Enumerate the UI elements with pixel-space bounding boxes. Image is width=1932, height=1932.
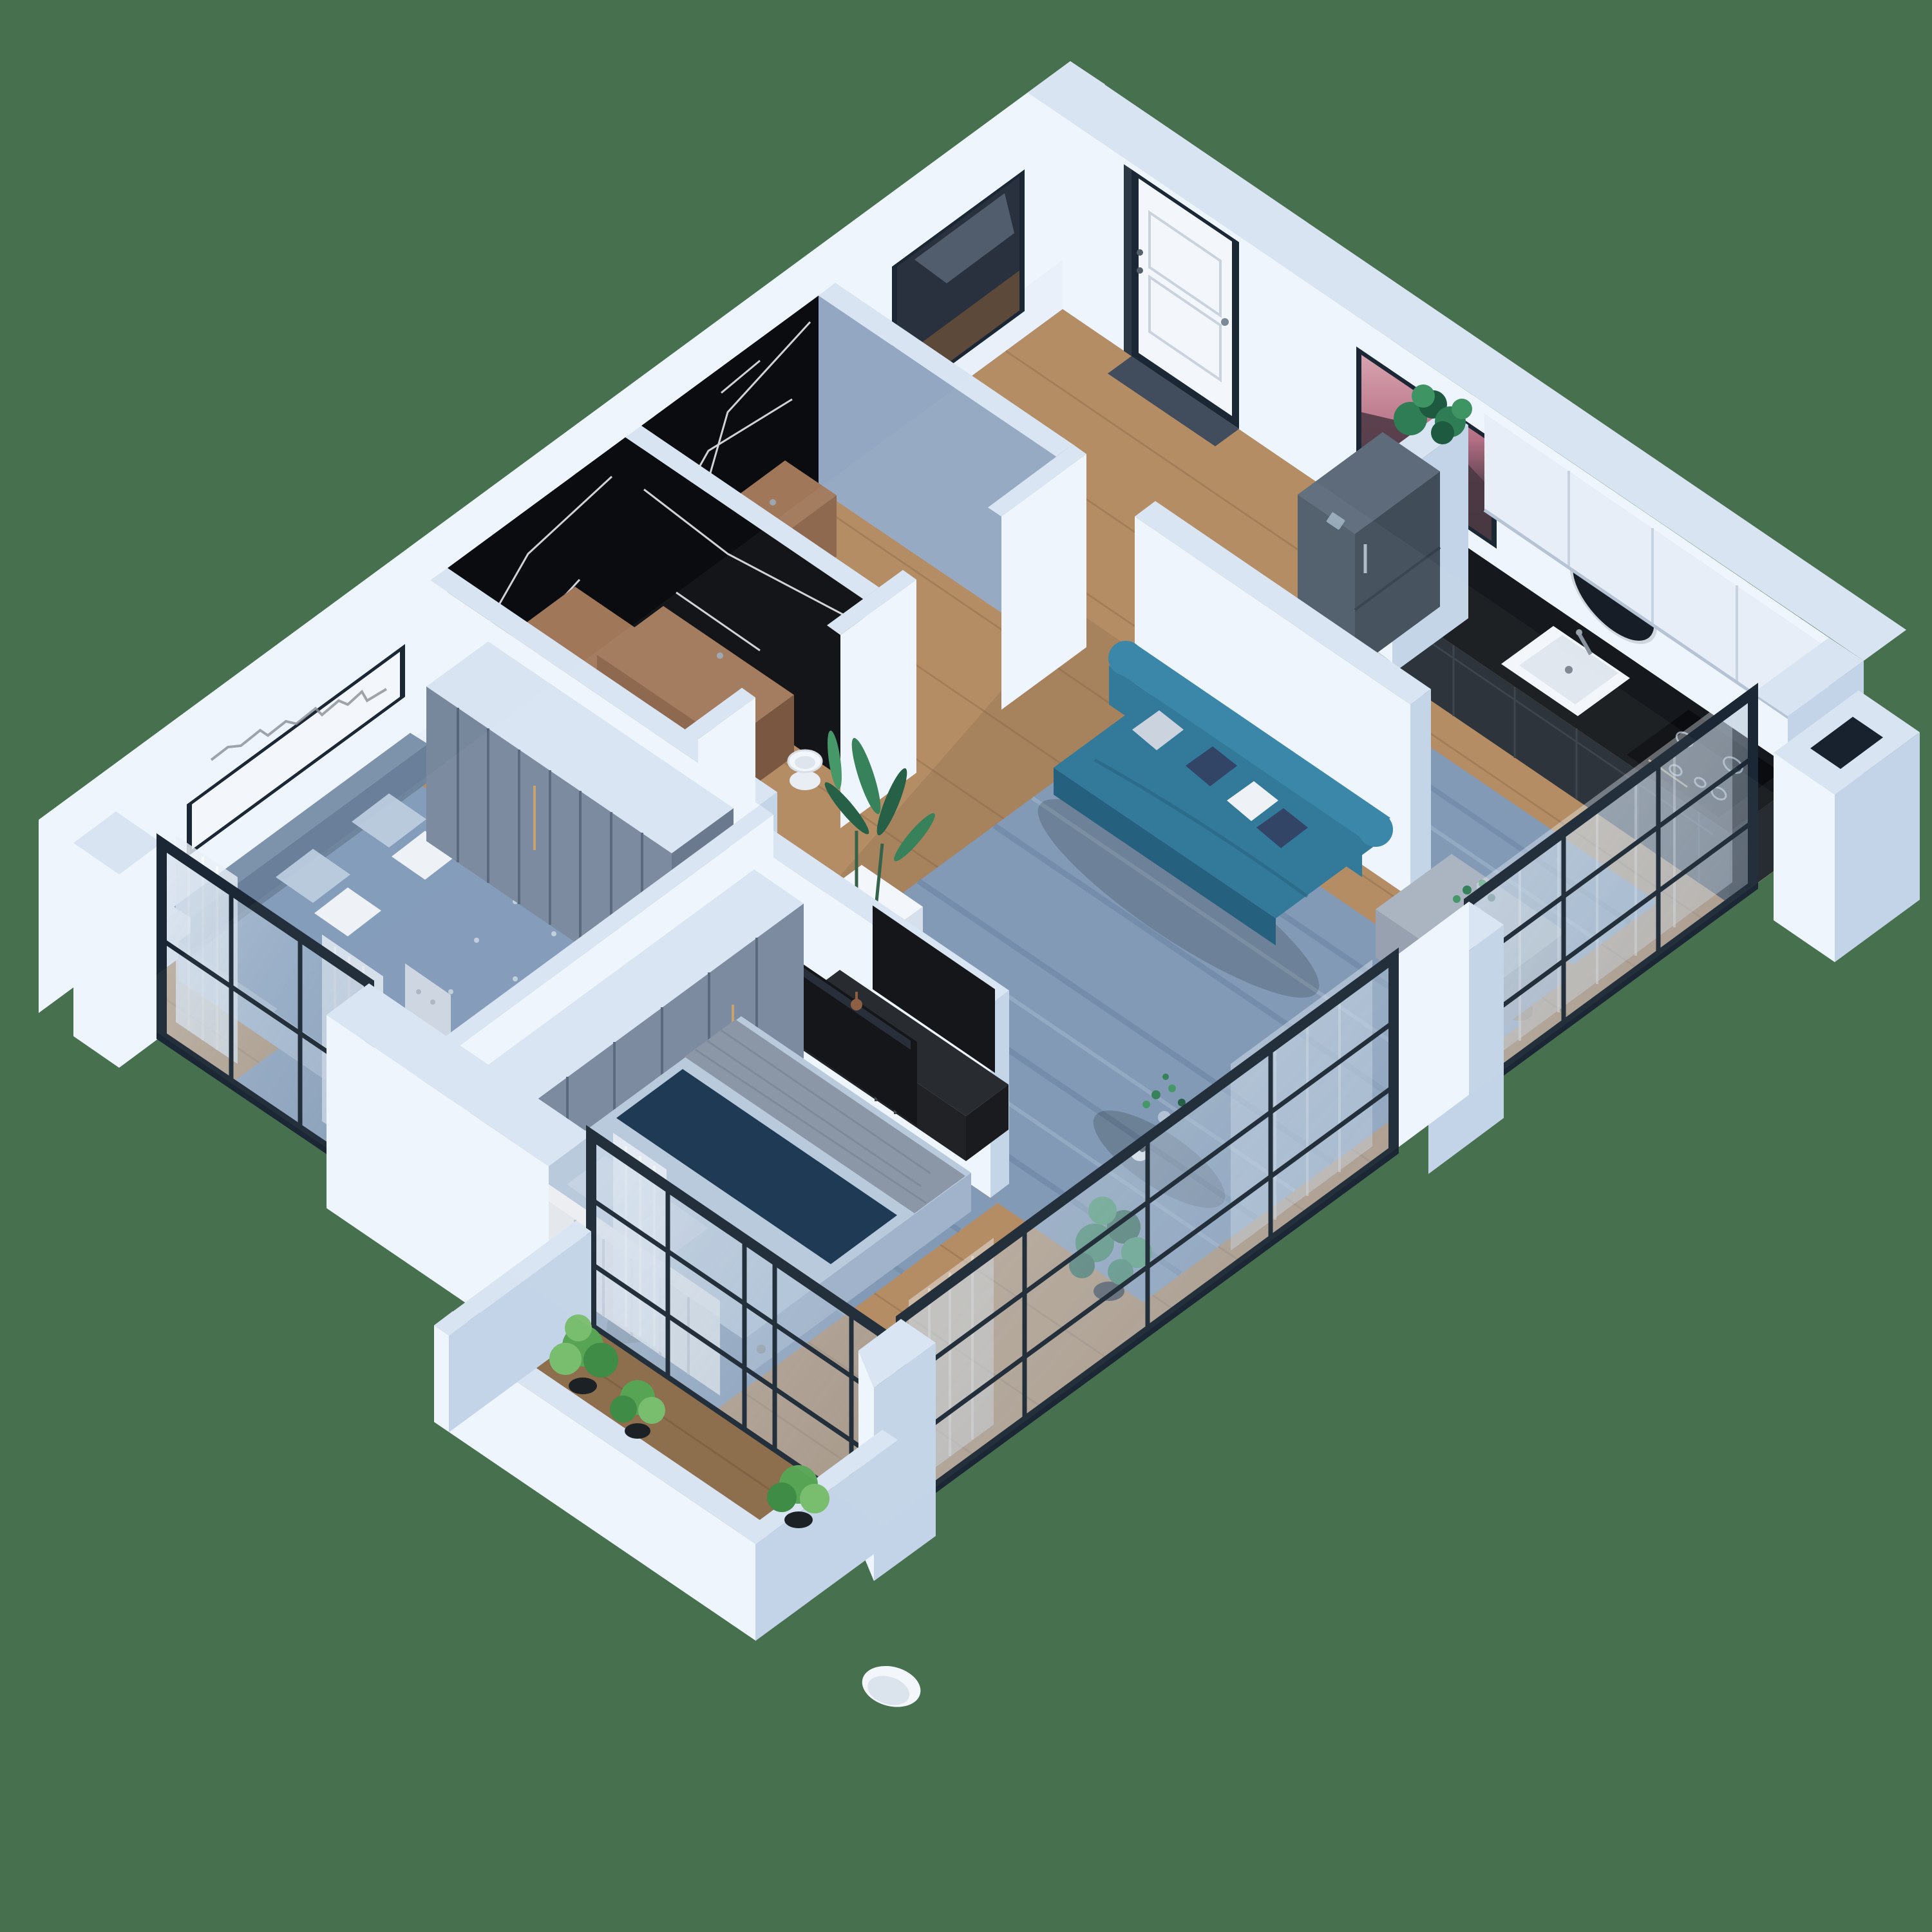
gas-hob	[1627, 710, 1781, 817]
fridge-shadow	[1307, 618, 1425, 715]
sphere-lamp	[1437, 926, 1455, 944]
armchair-base	[346, 1059, 395, 1122]
wall-outer-face	[39, 61, 1070, 1013]
drawer-seams	[1423, 638, 1713, 883]
fridge-top	[1298, 432, 1440, 534]
upper-cabinets	[1484, 413, 1821, 740]
plant-pot	[1094, 1282, 1124, 1301]
copper-vase	[851, 992, 862, 1010]
bedroom2-curtains	[613, 1133, 667, 1356]
pillow	[567, 1156, 644, 1211]
drain	[1565, 666, 1573, 674]
tv-screen-bedroom	[787, 953, 917, 1126]
balcony-shrubs	[549, 1314, 829, 1528]
tv-partition	[730, 813, 1009, 1198]
fridge-front	[1298, 495, 1355, 669]
skyline-sketch	[211, 689, 386, 760]
knit-runner	[685, 1019, 965, 1213]
planter-top	[786, 865, 923, 962]
corner-post	[858, 1319, 936, 1581]
bed-shadow	[254, 877, 571, 1132]
pillow	[631, 1201, 708, 1256]
tv-screen-living	[873, 905, 995, 1073]
console-top	[797, 970, 1009, 1116]
knit-lines	[696, 1030, 931, 1203]
throw-blanket	[496, 960, 650, 1069]
bath-round-mirror	[1571, 533, 1656, 661]
planter-side	[847, 907, 923, 1020]
door-threshold	[1108, 356, 1239, 446]
london-skyline-art	[187, 644, 405, 857]
shrub-pot	[625, 1423, 650, 1439]
parapet-end	[449, 1231, 591, 1432]
sofa-base	[1054, 768, 1276, 945]
bedroom1-window	[162, 843, 369, 1177]
bed-top	[178, 775, 643, 1103]
door-leaf	[1139, 178, 1232, 416]
sofa-backrest-top	[1109, 645, 1390, 838]
hallway-floor-tint	[773, 609, 1314, 1133]
kitchen-plant	[1394, 384, 1472, 444]
balcony	[434, 1221, 898, 1641]
bed-side	[744, 1173, 971, 1378]
cabinet-seams	[1569, 471, 1737, 682]
kitchen-corner-pier	[1753, 638, 1864, 909]
window-glass	[162, 843, 369, 1177]
door-frame	[1132, 169, 1239, 429]
shrub-pot	[784, 1511, 813, 1528]
parapet-outer	[434, 1325, 756, 1641]
sofa-shadow	[1018, 772, 1340, 1025]
wardrobe-slats	[458, 708, 642, 987]
partition-wc-bath	[625, 426, 879, 792]
window-curtains-interior	[909, 696, 1732, 1487]
corner-pier-left	[73, 811, 162, 1068]
wall-top-face	[1028, 61, 1906, 661]
corner-plant	[1069, 1197, 1152, 1301]
pillow	[352, 793, 426, 848]
marble-veins	[650, 322, 810, 554]
kitchen-end-pillar	[1369, 410, 1468, 674]
mirror-highlight	[914, 193, 1014, 283]
window-frame	[901, 958, 1394, 1512]
rugs	[231, 709, 1658, 1412]
strelitzia-leaves	[820, 730, 940, 908]
kitchen	[1298, 384, 1821, 904]
kitchen-rug	[1289, 709, 1658, 965]
shrub-pot	[569, 1378, 597, 1394]
main-bath-vanity	[488, 606, 794, 1932]
kitchen-sink	[1501, 626, 1630, 716]
cabinet-end	[1729, 777, 1805, 904]
bed-side	[416, 936, 643, 1142]
window-mullions	[1469, 757, 1753, 1030]
bed-2	[490, 1016, 971, 1396]
gray-dining-set	[1376, 854, 1932, 1932]
door-handle	[757, 1345, 766, 1354]
wardrobe-bedroom1	[426, 641, 734, 1008]
balcony-parapet	[434, 1221, 898, 1641]
wall-bottom-right	[901, 638, 1920, 1512]
oval-basin	[850, 1658, 932, 1716]
headboard-face	[191, 744, 428, 956]
wardrobe-front	[426, 687, 672, 1008]
cushion	[1256, 808, 1308, 848]
marble-veins	[644, 489, 850, 650]
tray-pattern	[922, 383, 952, 387]
front-door	[1108, 164, 1239, 446]
hob-controls	[1649, 760, 1687, 787]
tv-reflection	[793, 961, 911, 1050]
outer-wall-top-right	[1028, 61, 1906, 831]
door-panel	[1150, 213, 1220, 316]
fridge-door-seam	[1355, 547, 1440, 610]
duct-front	[1774, 753, 1835, 962]
cushion	[1186, 746, 1237, 786]
strelitzia-planter	[786, 730, 940, 1020]
mountain-silhouette	[1361, 412, 1492, 541]
cabinet-bottom-edge	[1484, 510, 1821, 740]
deck-planks	[515, 1356, 853, 1589]
cup	[726, 550, 736, 560]
tv-console	[797, 970, 1009, 1161]
headboard-top	[174, 733, 428, 918]
fridge-freezer	[1298, 432, 1440, 669]
armchair-seat	[346, 1018, 452, 1093]
bathrooms	[93, 283, 1932, 1932]
door-jamb	[1124, 164, 1132, 356]
wardrobe-top	[426, 641, 734, 853]
divider-top	[446, 805, 773, 1046]
green-background	[0, 0, 1932, 1932]
fridge-display	[1326, 512, 1345, 530]
pillow	[392, 831, 459, 880]
entry-hall	[848, 164, 1497, 551]
ambient-light	[116, 309, 1829, 1526]
cushion	[1227, 781, 1278, 821]
faucet	[717, 652, 723, 659]
bath-marble-wall	[448, 437, 625, 761]
sofa-partition	[1135, 501, 1431, 898]
toilet	[788, 750, 822, 790]
bath-tall-cabinet	[509, 587, 644, 850]
eucalyptus-vase	[1453, 880, 1495, 918]
window-glass	[901, 958, 1394, 1512]
window-pier	[1394, 902, 1504, 1174]
cabinet-fronts	[1392, 603, 1729, 904]
sofa-seat	[1054, 695, 1375, 918]
parapet-end	[755, 1440, 898, 1641]
table-front	[1376, 909, 1490, 1036]
divider-face	[459, 815, 773, 1239]
floor-planks	[144, 351, 1772, 1506]
duct-shaft	[1774, 690, 1920, 962]
duct-top	[1774, 690, 1920, 795]
bedroom1-curtains	[176, 835, 383, 1163]
living-room-rug	[730, 742, 1522, 1302]
balcony-deck	[468, 1328, 882, 1616]
bed-top	[514, 1016, 971, 1340]
kitchen-window	[1469, 693, 1753, 1095]
guest-wc-vanity	[672, 460, 933, 1716]
wardrobe-front	[520, 904, 804, 1267]
bedroom1-rug	[231, 875, 730, 1229]
navy-throw	[616, 1069, 897, 1264]
headboard-channels	[518, 1181, 688, 1374]
base-cabinets	[1392, 548, 1805, 904]
table-shadow	[1080, 1094, 1238, 1225]
duvet-pattern	[410, 899, 569, 1033]
entry-mirror	[892, 169, 1025, 408]
faucet	[1579, 634, 1591, 654]
bedroom2-rug	[476, 1041, 998, 1412]
bed-shadow	[584, 1121, 884, 1372]
wardrobe-side	[672, 808, 734, 1008]
bed-front	[178, 942, 416, 1142]
glazing-mullions	[591, 1187, 882, 1505]
duct-side	[1835, 732, 1920, 962]
wall-bottom-left	[73, 811, 936, 1581]
floor-plan-render	[0, 0, 1932, 1932]
window-mullions	[162, 890, 369, 1130]
dining-window	[901, 958, 1394, 1512]
wood-floor	[116, 309, 1829, 1526]
pillow	[276, 849, 350, 903]
countertop	[1392, 548, 1805, 833]
seat-seam	[1095, 760, 1307, 896]
door-lock	[1137, 267, 1143, 274]
cushion	[1132, 710, 1184, 750]
mirror-floor-reflection	[897, 270, 1019, 401]
glazing-glass	[591, 1135, 882, 1526]
headboard-face	[490, 1162, 720, 1396]
marble-veins	[477, 477, 612, 657]
balcony-glazing	[591, 1135, 882, 1526]
armchair-back	[405, 963, 451, 1059]
wall-inner-face	[1063, 116, 1829, 831]
window-frame	[162, 843, 369, 1177]
bathroom-hall-wall	[685, 444, 1086, 933]
door-handle	[1221, 318, 1229, 326]
living-room	[486, 501, 1932, 1932]
floor-diamond	[116, 309, 1829, 1526]
console-front	[797, 1001, 966, 1161]
window-mullions	[901, 1022, 1394, 1448]
window-glass	[1469, 693, 1753, 1095]
headboard-top	[490, 1144, 720, 1318]
wardrobe-bedroom2	[470, 869, 804, 1267]
teal-sofa	[1054, 641, 1698, 1932]
bedroom-1	[174, 641, 734, 1163]
wall-top-face	[39, 61, 1105, 843]
console-side	[966, 1084, 1009, 1161]
bedroom-2	[446, 805, 971, 1396]
oval-basin	[488, 1926, 584, 1932]
mountain-artwork	[1356, 346, 1497, 549]
door-panel	[1150, 277, 1220, 380]
window-armchair	[346, 963, 452, 1122]
sphere-lamp	[1130, 1142, 1150, 1161]
faucet	[770, 499, 776, 506]
parapet-end-top	[434, 1221, 591, 1336]
glazing-frame	[591, 1135, 882, 1526]
wall-inner-face	[116, 116, 1063, 1005]
decor-tray	[909, 367, 960, 413]
wardrobe-side	[470, 1078, 520, 1267]
fridge-side	[1355, 471, 1440, 669]
wardrobe-top	[470, 869, 804, 1112]
window-frame	[1469, 693, 1753, 1095]
partition-bath-bedroom1	[430, 568, 777, 998]
wc-marble-wall	[641, 296, 819, 619]
duct-opening	[1810, 717, 1883, 769]
eucalyptus-vase	[1142, 1074, 1186, 1124]
table-top	[1376, 854, 1566, 988]
pillow	[314, 887, 381, 936]
door-lock	[1137, 249, 1143, 256]
bed-1	[174, 733, 652, 1142]
wardrobe-slats	[567, 938, 757, 1231]
round-dining-set	[486, 1074, 1238, 1932]
entry-console-cabinet	[848, 336, 1017, 551]
table-side	[1490, 932, 1566, 1036]
parapet-top	[434, 1311, 775, 1544]
planter-front	[786, 920, 847, 1020]
headboard-pier	[403, 1036, 591, 1359]
window-pier	[327, 983, 446, 1260]
partition-entry-wc	[819, 283, 1073, 650]
duvet	[274, 838, 652, 1108]
outer-wall-top-left	[39, 61, 1105, 1013]
table-shadow	[1378, 901, 1546, 1037]
parapet-end-top	[741, 1430, 898, 1544]
sofa-backrest	[1109, 666, 1362, 877]
